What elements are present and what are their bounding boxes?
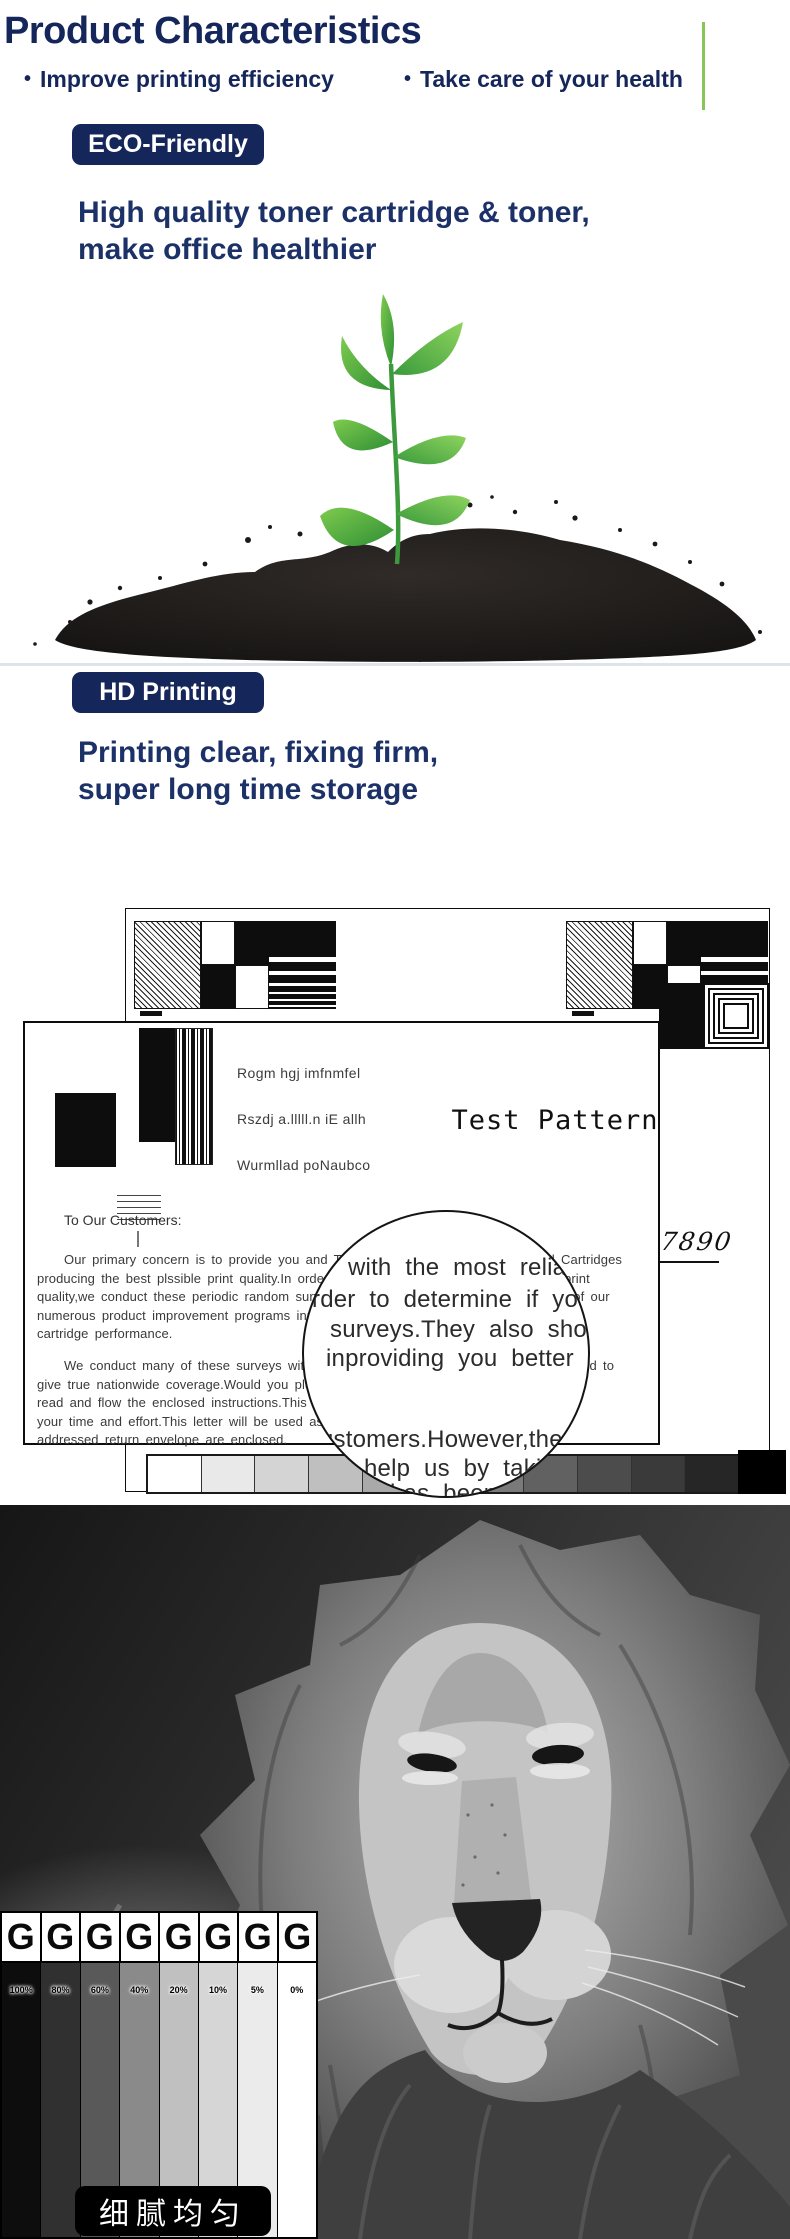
g-letter: G xyxy=(121,1913,161,1963)
sample-text-line: Wurmllad poNaubco xyxy=(237,1157,370,1173)
eco-headline: High quality toner cartridge & toner, ma… xyxy=(78,194,590,268)
chin xyxy=(463,2023,547,2083)
seedling-toner-pile-image xyxy=(0,272,790,662)
density-chart-caption: 细腻均匀 xyxy=(75,2186,271,2236)
under-eye-light xyxy=(402,1771,458,1785)
stripe-pattern xyxy=(269,921,336,1009)
bullet-dot-icon: • xyxy=(24,68,31,90)
magnifier-circle: with the most reliable rder to determine… xyxy=(302,1210,590,1498)
g-letter: G xyxy=(160,1913,200,1963)
concentric-squares-pattern xyxy=(703,983,769,1049)
checker-pattern xyxy=(201,921,269,1009)
product-detail-page: Product Characteristics •Improve printin… xyxy=(0,0,790,2239)
g-letter: G xyxy=(279,1913,317,1963)
g-letter: G xyxy=(42,1913,82,1963)
grayscale-black-end xyxy=(738,1450,786,1494)
toner-pile xyxy=(55,528,756,662)
seedling xyxy=(320,294,470,564)
page-title: Product Characteristics xyxy=(4,10,421,53)
eco-friendly-badge: ECO-Friendly xyxy=(72,124,264,165)
hd-headline: Printing clear, fixing firm, super long … xyxy=(78,734,438,808)
calibration-mark xyxy=(140,1011,162,1016)
calibration-mark xyxy=(572,1011,594,1016)
bullet-dot-icon: • xyxy=(404,68,411,90)
barcode-lines xyxy=(175,1028,213,1165)
g-letter: G xyxy=(2,1913,42,1963)
green-divider-line xyxy=(702,22,705,110)
handwriting-underline xyxy=(659,1261,719,1263)
bullet-improve-efficiency: •Improve printing efficiency xyxy=(24,66,334,93)
hd-printing-badge: HD Printing xyxy=(72,672,264,713)
hatch-pattern xyxy=(566,921,633,1009)
hatch-pattern xyxy=(134,921,201,1009)
under-eye-light xyxy=(530,1763,590,1779)
handwriting-sample: 7890 xyxy=(659,1227,735,1256)
bullet-health: •Take care of your health xyxy=(404,66,683,93)
g-letter: G xyxy=(200,1913,240,1963)
barcode-black-block xyxy=(139,1028,175,1142)
calibration-block-left xyxy=(134,921,336,1009)
g-letter: G xyxy=(239,1913,279,1963)
g-letter: G xyxy=(81,1913,121,1963)
density-column: 100% xyxy=(2,1963,41,2237)
calibration-black-square xyxy=(659,983,703,1049)
section-divider xyxy=(0,663,790,666)
sample-text-line: Rszdj a.lllll.n iE allh xyxy=(237,1111,366,1127)
density-column: 0% xyxy=(278,1963,316,2237)
letter-salutation: To Our Customers: xyxy=(64,1212,181,1228)
test-pattern-title: Test Pattern xyxy=(425,1105,685,1136)
sample-text-line: Rogm hgj imfnmfel xyxy=(237,1065,361,1081)
tick-mark xyxy=(137,1231,139,1247)
density-chart-header: G G G G G G G G xyxy=(2,1913,316,1963)
solid-black-square xyxy=(55,1093,116,1167)
